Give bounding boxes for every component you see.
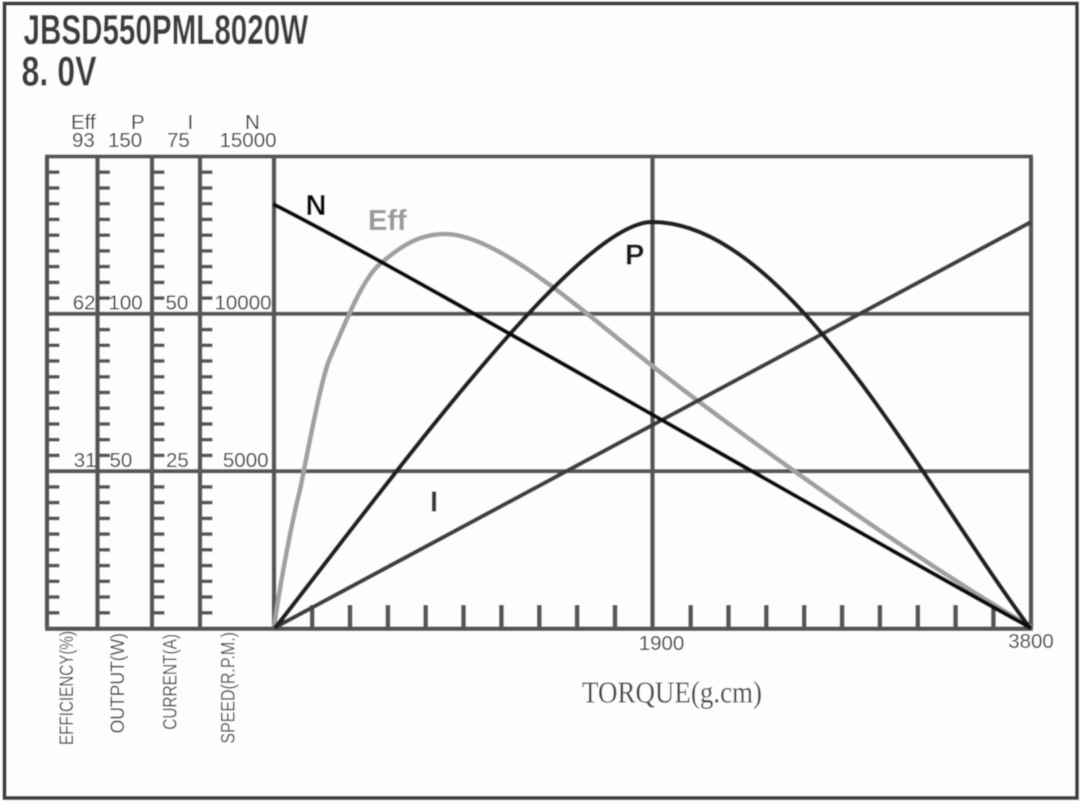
svg-text:Eff: Eff bbox=[368, 205, 407, 237]
svg-text:50: 50 bbox=[110, 449, 133, 472]
svg-text:1900: 1900 bbox=[639, 632, 685, 655]
svg-text:TORQUE(g.cm): TORQUE(g.cm) bbox=[582, 676, 762, 710]
svg-text:P: P bbox=[625, 240, 644, 272]
svg-text:OUTPUT(W): OUTPUT(W) bbox=[106, 633, 128, 733]
svg-text:8. 0V: 8. 0V bbox=[22, 47, 97, 94]
svg-text:I: I bbox=[430, 487, 438, 519]
svg-text:3800: 3800 bbox=[1008, 630, 1054, 653]
svg-text:31: 31 bbox=[74, 449, 97, 472]
svg-text:15000: 15000 bbox=[219, 129, 276, 152]
svg-text:150: 150 bbox=[108, 129, 142, 152]
svg-text:JBSD550PML8020W: JBSD550PML8020W bbox=[24, 6, 309, 53]
svg-text:93: 93 bbox=[72, 129, 95, 152]
svg-text:5000: 5000 bbox=[223, 449, 269, 472]
svg-text:EFFICIENCY(%): EFFICIENCY(%) bbox=[55, 631, 77, 745]
svg-text:N: N bbox=[306, 190, 327, 222]
svg-text:25: 25 bbox=[166, 449, 189, 472]
svg-text:100: 100 bbox=[109, 292, 143, 315]
svg-text:50: 50 bbox=[166, 292, 189, 315]
svg-text:CURRENT(A): CURRENT(A) bbox=[159, 634, 181, 730]
svg-text:75: 75 bbox=[167, 129, 190, 152]
svg-text:62: 62 bbox=[73, 292, 96, 315]
svg-text:SPEED(R.P.M.): SPEED(R.P.M.) bbox=[217, 632, 239, 744]
svg-text:10000: 10000 bbox=[214, 292, 271, 315]
